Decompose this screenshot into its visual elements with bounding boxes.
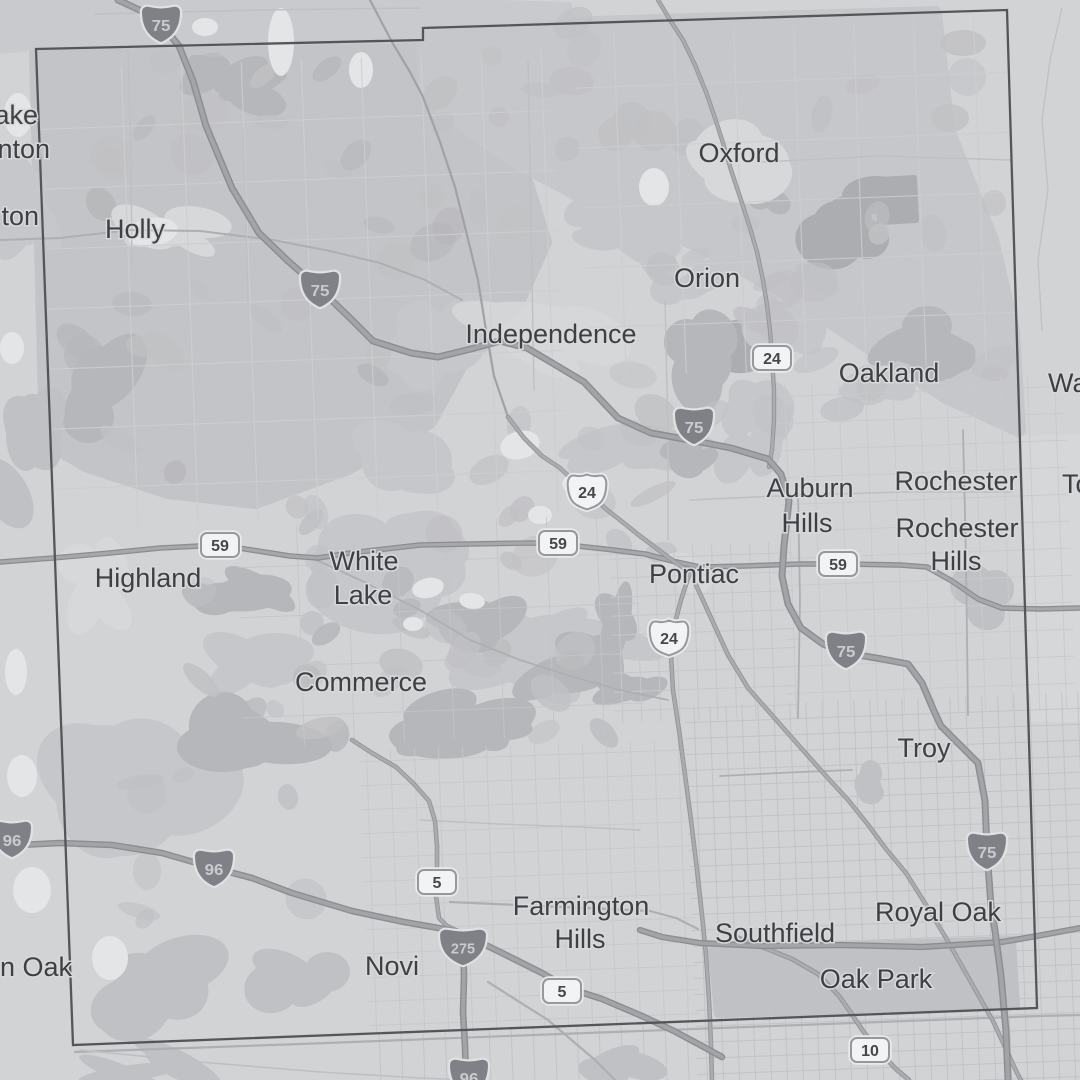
svg-text:75: 75 xyxy=(311,282,330,299)
svg-text:Rochester: Rochester xyxy=(894,466,1017,496)
svg-text:nton: nton xyxy=(0,134,50,164)
svg-text:ton: ton xyxy=(1,201,39,231)
svg-text:96: 96 xyxy=(460,1070,479,1080)
svg-text:75: 75 xyxy=(837,643,856,660)
svg-text:59: 59 xyxy=(549,536,567,553)
svg-text:Hills: Hills xyxy=(782,508,833,538)
svg-text:Holly: Holly xyxy=(105,214,166,244)
svg-text:Pontiac: Pontiac xyxy=(649,559,739,589)
svg-text:24: 24 xyxy=(763,351,781,368)
svg-text:75: 75 xyxy=(152,17,171,34)
svg-text:Independence: Independence xyxy=(465,319,636,349)
svg-text:Highland: Highland xyxy=(95,563,202,593)
svg-text:Auburn: Auburn xyxy=(766,473,853,503)
svg-text:275: 275 xyxy=(451,942,475,958)
svg-text:Novi: Novi xyxy=(365,951,419,981)
svg-text:Oakland: Oakland xyxy=(839,358,940,388)
svg-text:75: 75 xyxy=(685,419,704,436)
svg-text:To: To xyxy=(1062,469,1080,499)
svg-text:Orion: Orion xyxy=(674,263,740,293)
svg-text:Commerce: Commerce xyxy=(295,667,427,697)
svg-text:ake: ake xyxy=(0,100,38,130)
svg-text:10: 10 xyxy=(861,1043,879,1060)
svg-text:24: 24 xyxy=(578,485,596,502)
svg-text:75: 75 xyxy=(978,844,997,861)
svg-text:Wa: Wa xyxy=(1048,368,1080,398)
svg-text:Royal Oak: Royal Oak xyxy=(875,897,1002,927)
svg-text:White: White xyxy=(329,546,398,576)
svg-text:59: 59 xyxy=(211,538,229,555)
svg-text:96: 96 xyxy=(3,832,22,849)
svg-text:Oxford: Oxford xyxy=(698,138,779,168)
svg-text:Oak Park: Oak Park xyxy=(820,964,933,994)
svg-text:Troy: Troy xyxy=(898,733,951,763)
svg-text:Hills: Hills xyxy=(555,924,606,954)
svg-text:96: 96 xyxy=(205,861,224,878)
svg-text:Farmington: Farmington xyxy=(513,891,650,921)
svg-text:Hills: Hills xyxy=(931,546,982,576)
svg-text:Southfield: Southfield xyxy=(715,918,835,948)
svg-text:en Oak: en Oak xyxy=(0,952,72,982)
svg-text:Rochester: Rochester xyxy=(895,513,1018,543)
svg-text:5: 5 xyxy=(433,875,442,892)
svg-text:24: 24 xyxy=(660,631,678,648)
svg-text:59: 59 xyxy=(829,557,847,574)
svg-text:5: 5 xyxy=(558,984,567,1001)
svg-text:Lake: Lake xyxy=(334,580,393,610)
